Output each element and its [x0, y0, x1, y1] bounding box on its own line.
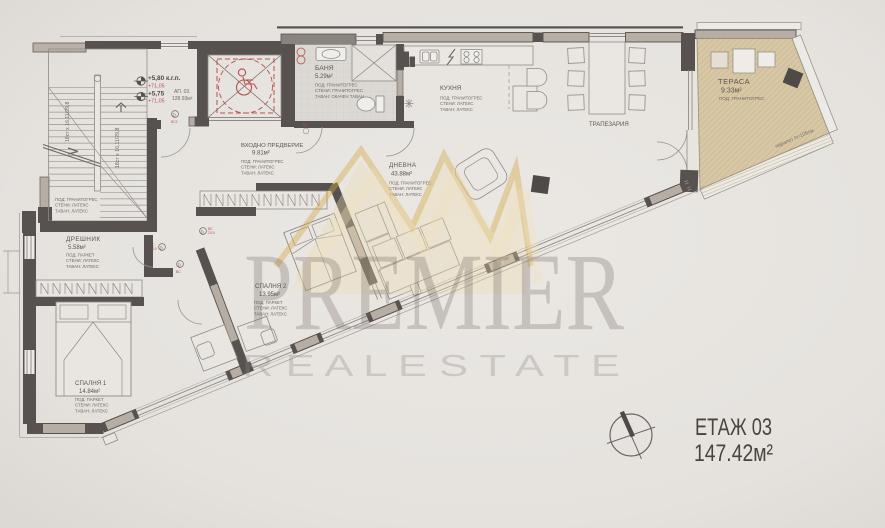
svg-text:14.84м²: 14.84м²: [79, 389, 100, 395]
svg-text:9.33м²: 9.33м²: [721, 88, 742, 95]
svg-text:ПОД: ПАРКЕТ: ПОД: ПАРКЕТ: [75, 397, 104, 402]
svg-text:ПОД: ПАРКЕТ: ПОД: ПАРКЕТ: [66, 253, 95, 258]
svg-text:ТАВАН: ОКАЧЕН ТАВАН: ТАВАН: ОКАЧЕН ТАВАН: [315, 94, 364, 99]
svg-text:5.29м²: 5.29м²: [315, 74, 333, 80]
svg-text:18ст х 16,11/29,8: 18ст х 16,11/29,8: [65, 102, 71, 142]
svg-text:ЕТАЖ 03: ЕТАЖ 03: [695, 414, 772, 441]
svg-text:СТЕНИ: ГРАНИТОГРЕС: СТЕНИ: ГРАНИТОГРЕС: [315, 88, 363, 93]
svg-text:R E A L E S T A T E: R E A L E S T A T E: [242, 348, 620, 383]
svg-text:ПОД: ГРАНИТОГРЕС: ПОД: ГРАНИТОГРЕС: [55, 197, 98, 202]
svg-text:СПАЛНЯ 1: СПАЛНЯ 1: [75, 380, 107, 387]
svg-text:ПОД: ГРАНИТОГРЕС: ПОД: ГРАНИТОГРЕС: [389, 181, 432, 186]
svg-text:ВС: ВС: [303, 123, 308, 127]
svg-text:ВХОДНО ПРЕДВЕРИЕ: ВХОДНО ПРЕДВЕРИЕ: [241, 143, 303, 149]
svg-text:ТАВАН: ЛАТЕКС: ТАВАН: ЛАТЕКС: [66, 264, 99, 269]
svg-text:ТАВАН: ЛАТЕКС: ТАВАН: ЛАТЕКС: [440, 107, 473, 112]
svg-text:2/10: 2/10: [208, 231, 215, 235]
svg-text:СТЕНИ: ЛАТЕКС: СТЕНИ: ЛАТЕКС: [66, 258, 99, 263]
svg-text:+71,05: +71,05: [148, 99, 165, 105]
svg-text:+5,75: +5,75: [148, 91, 165, 98]
svg-text:СТЕНИ: ЛАТЕКС: СТЕНИ: ЛАТЕКС: [440, 101, 473, 106]
svg-text:ТЕРАСА: ТЕРАСА: [718, 77, 750, 86]
svg-text:ПОД: ГРАНИТОГРЕС: ПОД: ГРАНИТОГРЕС: [315, 83, 358, 88]
svg-text:ПОД: ГРАНИТОГРЕС: ПОД: ГРАНИТОГРЕС: [719, 96, 765, 101]
svg-text:5.58м²: 5.58м²: [68, 245, 86, 251]
svg-text:СТЕНИ: ЛАТЕКС: СТЕНИ: ЛАТЕКС: [55, 203, 88, 208]
svg-text:АП. 03.: АП. 03.: [174, 89, 191, 95]
svg-text:СТЕНИ: ЛАТЕКС: СТЕНИ: ЛАТЕКС: [389, 186, 422, 191]
svg-text:128.93м²: 128.93м²: [172, 96, 193, 102]
svg-text:ДРЕШНИК: ДРЕШНИК: [66, 236, 100, 243]
svg-text:+5,80 к.г.п.: +5,80 к.г.п.: [148, 75, 181, 82]
svg-text:147.42м²: 147.42м²: [694, 440, 773, 467]
svg-text:+71,05: +71,05: [148, 84, 165, 90]
svg-text:ПОД: ГРАНИТОГРЕС: ПОД: ГРАНИТОГРЕС: [440, 96, 483, 101]
svg-text:БАНЯ: БАНЯ: [315, 65, 334, 72]
svg-text:ТАВАН: ЛАТЕКС: ТАВАН: ЛАТЕКС: [241, 170, 274, 175]
svg-text:18ст х 16,11/29,8: 18ст х 16,11/29,8: [115, 128, 121, 168]
svg-text:СТЕНИ: ЛАТЕКС: СТЕНИ: ЛАТЕКС: [241, 165, 274, 170]
svg-text:ТАВАН: ЛАТЕКС: ТАВАН: ЛАТЕКС: [75, 408, 108, 413]
svg-text:ВС: ВС: [176, 270, 181, 274]
svg-text:ТАВАН: ЛАТЕКС: ТАВАН: ЛАТЕКС: [55, 208, 88, 213]
svg-text:PREMIER: PREMIER: [244, 231, 624, 353]
svg-text:9.81м²: 9.81м²: [252, 151, 270, 157]
svg-text:ПОД: ГРАНИТОГРЕС: ПОД: ГРАНИТОГРЕС: [241, 159, 284, 164]
svg-text:ТРАПЕЗАРИЯ: ТРАПЕЗАРИЯ: [589, 122, 629, 128]
svg-text:ВС2: ВС2: [171, 120, 178, 124]
svg-text:СТЕНИ: ЛАТЕКС: СТЕНИ: ЛАТЕКС: [75, 403, 108, 408]
svg-text:КУХНЯ: КУХНЯ: [440, 85, 462, 92]
svg-text:ДНЕВНА: ДНЕВНА: [389, 162, 417, 169]
svg-text:43.88м²: 43.88м²: [391, 172, 412, 178]
